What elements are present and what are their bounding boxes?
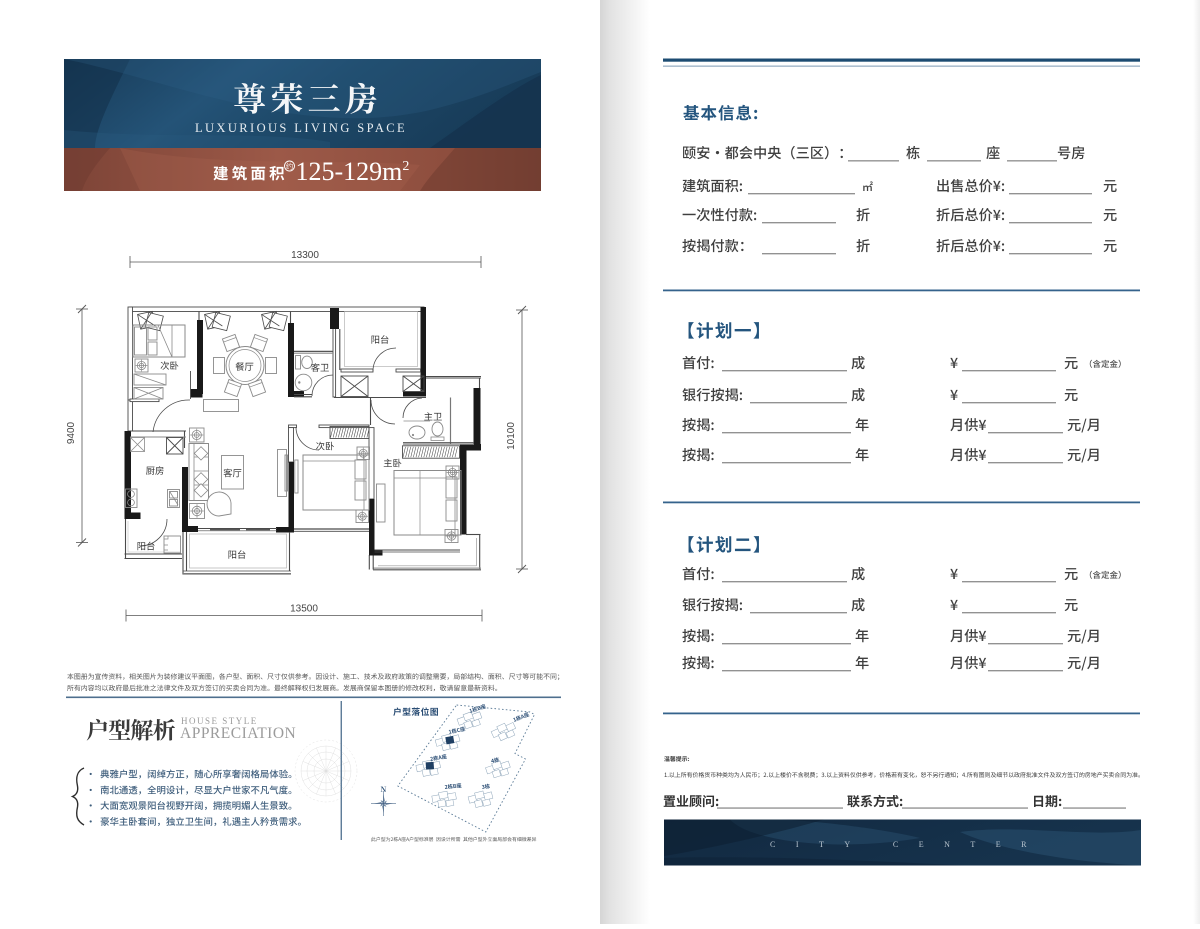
svg-text:125-129m2: 125-129m2 [296, 157, 410, 186]
svg-text:APPRECIATION: APPRECIATION [180, 725, 296, 742]
svg-text:9400: 9400 [66, 421, 77, 444]
svg-text:CITY CENTER: CITY CENTER [770, 840, 1047, 849]
svg-text:13300: 13300 [291, 250, 319, 261]
svg-text:10100: 10100 [506, 422, 517, 450]
svg-text:13500: 13500 [290, 604, 318, 615]
svg-text:LUXURIOUS LIVING SPACE: LUXURIOUS LIVING SPACE [195, 121, 407, 135]
